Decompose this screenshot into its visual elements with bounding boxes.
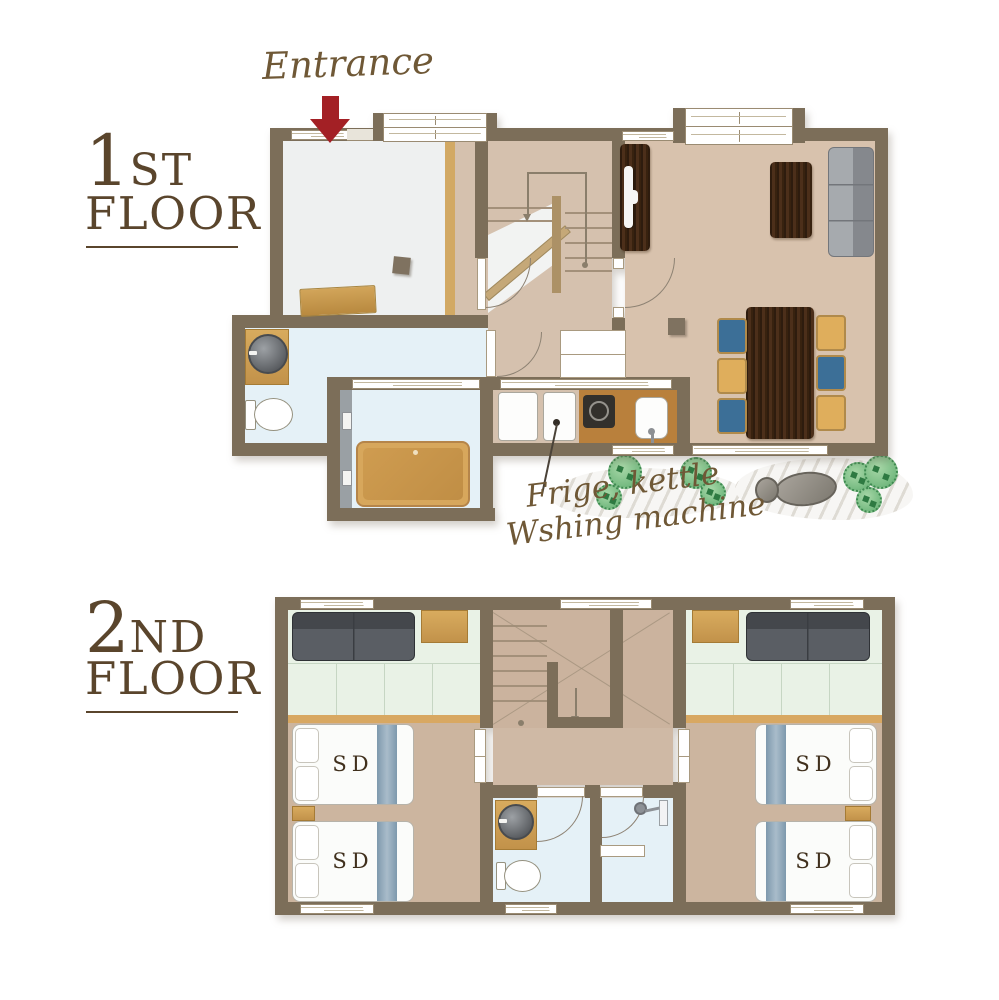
appliance-note: Frige, kettle Wshing machine (500, 450, 768, 553)
floor2-underline (86, 711, 238, 713)
floor1-word: FLOOR (85, 192, 261, 236)
floorplan-page: SD SD SD SD 1ST FLOOR 2ND FLOOR (0, 0, 999, 1000)
floor1-underline (86, 246, 238, 248)
entrance-arrow-icon (310, 119, 350, 143)
floor2-word: FLOOR (85, 657, 261, 701)
annotation-layer: 1ST FLOOR 2ND FLOOR Entrance Frige, kett… (0, 0, 999, 1000)
entrance-label: Entrance (261, 39, 434, 88)
